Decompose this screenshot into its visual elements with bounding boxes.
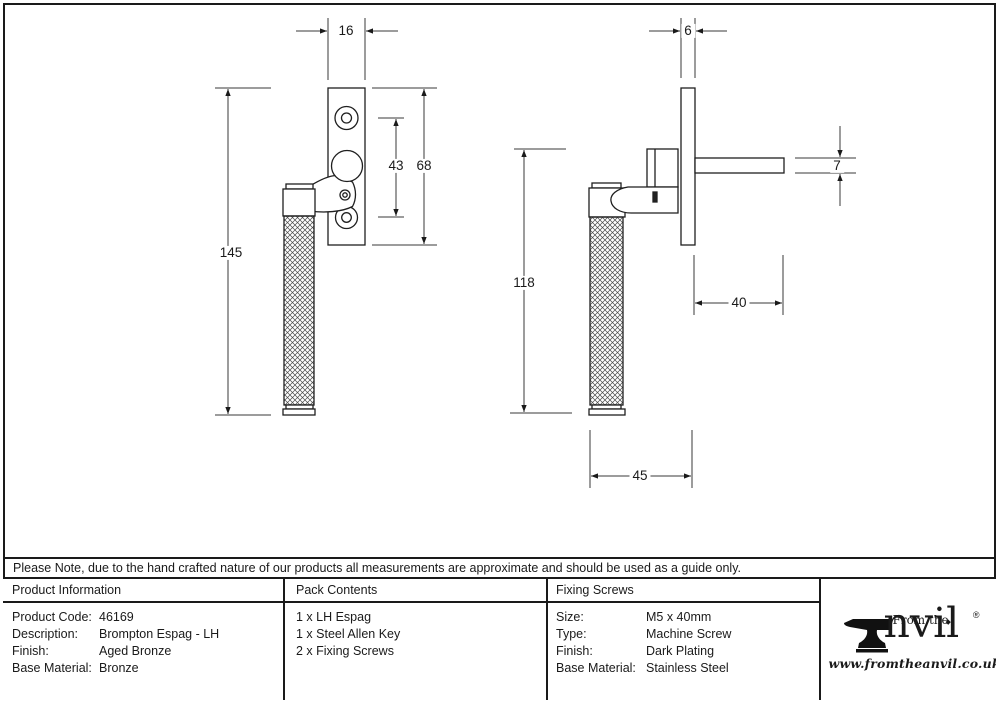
spec-sheet: 16 145 43 68 6 118 7 40 45 Please Note, … (0, 0, 1000, 703)
dim-front-plate-height: 68 (413, 159, 434, 173)
grip-collar-front (283, 189, 315, 216)
brand-name: nvil (884, 603, 960, 644)
spec-value: Dark Plating (646, 644, 714, 658)
spec-row: Type:Machine Screw (556, 626, 819, 643)
dim-side-spindle-height: 7 (830, 159, 844, 173)
spec-value: M5 x 40mm (646, 610, 711, 624)
handle-arm-side (611, 187, 678, 213)
spec-label: Finish: (556, 643, 646, 660)
backplate-side (681, 88, 695, 245)
dim-side-handle-length: 118 (510, 276, 538, 290)
spec-label: Type: (556, 626, 646, 643)
pack-item: 2 x Fixing Screws (296, 643, 546, 660)
technical-drawing (0, 0, 1000, 557)
spec-value: Brompton Espag - LH (99, 627, 219, 641)
knurled-grip-side (590, 217, 623, 405)
spec-row: Finish:Dark Plating (556, 643, 819, 660)
product-information-cell: Product Code:46169 Description:Brompton … (3, 603, 285, 700)
dim-front-hole-spacing: 43 (385, 159, 406, 173)
spec-row: Base Material:Bronze (12, 660, 283, 677)
spec-label: Product Code: (12, 609, 99, 626)
hub-side (647, 149, 678, 187)
front-view (283, 88, 365, 415)
pack-item: 1 x Steel Allen Key (296, 626, 546, 643)
registered-mark-icon: ® (973, 610, 980, 620)
dim-side-plate-thickness: 6 (681, 24, 695, 38)
spec-row: Size:M5 x 40mm (556, 609, 819, 626)
spec-value: 46169 (99, 610, 134, 624)
knurled-grip-front (284, 216, 314, 405)
spec-value: Bronze (99, 661, 139, 675)
dim-front-overall-length: 145 (217, 246, 246, 260)
note-bar: Please Note, due to the hand crafted nat… (3, 557, 996, 579)
fixing-screws-cell: Size:M5 x 40mm Type:Machine Screw Finish… (548, 603, 821, 700)
brand-url: www.fromtheanvil.co.uk (829, 656, 989, 671)
set-screw-slot (653, 192, 657, 202)
dim-side-projection: 45 (629, 469, 650, 483)
spec-value: Stainless Steel (646, 661, 729, 675)
spec-value: Aged Bronze (99, 644, 171, 658)
fixing-screws-header: Fixing Screws (548, 579, 821, 603)
product-information-header: Product Information (3, 579, 285, 603)
pack-item: 1 x LH Espag (296, 609, 546, 626)
knob-front (332, 151, 363, 182)
note-text: Please Note, due to the hand crafted nat… (13, 561, 741, 575)
spindle (695, 158, 784, 173)
spec-row: Finish:Aged Bronze (12, 643, 283, 660)
dim-front-plate-width: 16 (335, 24, 356, 38)
spec-label: Description: (12, 626, 99, 643)
spec-label: Finish: (12, 643, 99, 660)
spec-row: Description:Brompton Espag - LH (12, 626, 283, 643)
spec-label: Base Material: (556, 660, 646, 677)
spec-label: Base Material: (12, 660, 99, 677)
spec-label: Size: (556, 609, 646, 626)
spec-value: Machine Screw (646, 627, 731, 641)
grip-cap-side (592, 183, 621, 188)
pack-contents-header: Pack Contents (285, 579, 548, 603)
anvil-logo: From the ◆ nvil ® www.fromtheanvil.co.uk (843, 612, 975, 668)
grip-cap-front (286, 184, 313, 189)
spec-row: Product Code:46169 (12, 609, 283, 626)
spec-table: Product Information Pack Contents Fixing… (3, 579, 996, 700)
pack-contents-cell: 1 x LH Espag 1 x Steel Allen Key 2 x Fix… (285, 603, 548, 700)
side-view (589, 88, 784, 415)
spec-row: Base Material:Stainless Steel (556, 660, 819, 677)
dim-side-spindle-length: 40 (728, 296, 749, 310)
brand-logo-cell: From the ◆ nvil ® www.fromtheanvil.co.uk (821, 579, 996, 700)
